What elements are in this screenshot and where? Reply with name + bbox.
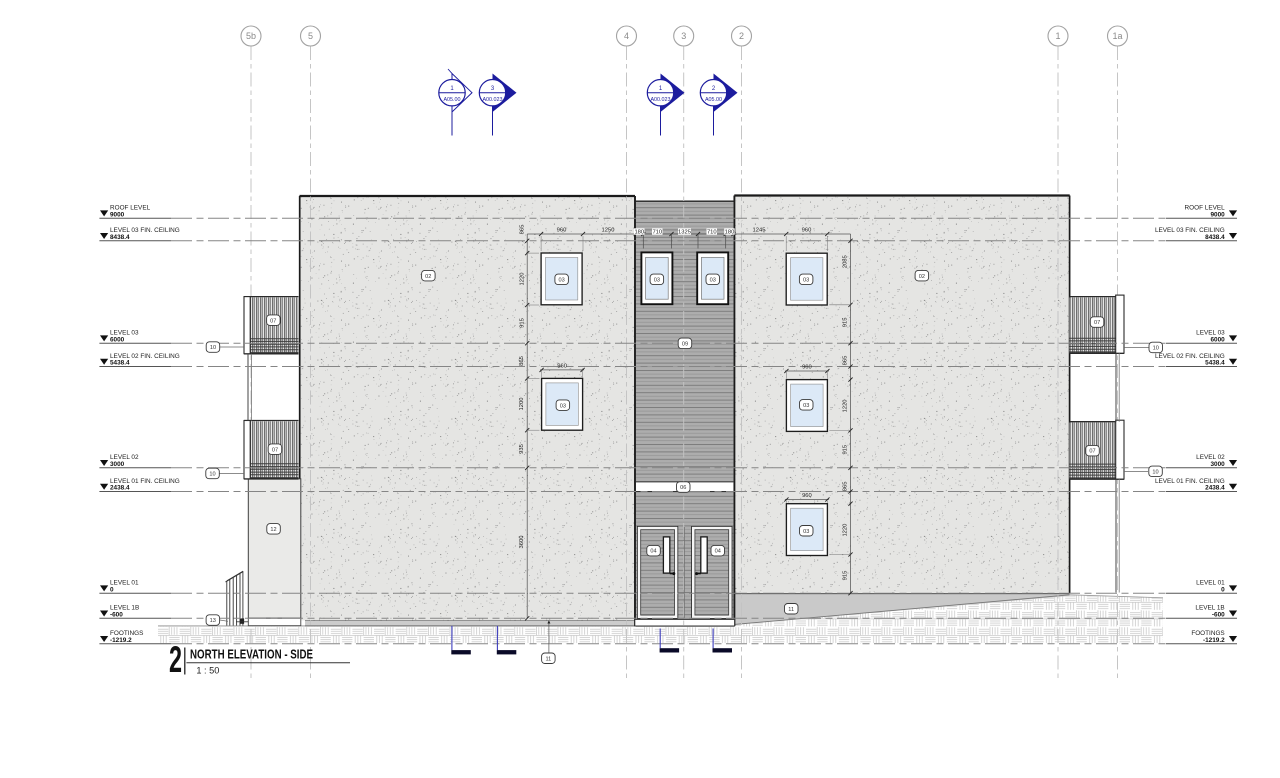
svg-text:2: 2 <box>169 639 182 680</box>
svg-text:03: 03 <box>803 277 809 283</box>
svg-text:5438.4: 5438.4 <box>110 360 130 367</box>
svg-text:915: 915 <box>843 445 849 455</box>
svg-text:9000: 9000 <box>110 211 125 218</box>
svg-text:07: 07 <box>1094 320 1100 326</box>
svg-text:865: 865 <box>843 356 849 366</box>
svg-text:0: 0 <box>110 586 114 593</box>
svg-text:07: 07 <box>1089 449 1095 455</box>
svg-text:180: 180 <box>725 230 735 236</box>
svg-text:3: 3 <box>681 31 686 41</box>
svg-text:2: 2 <box>739 31 744 41</box>
svg-text:11: 11 <box>545 656 551 662</box>
svg-text:8438.4: 8438.4 <box>110 234 130 241</box>
svg-text:-600: -600 <box>1212 611 1225 618</box>
svg-text:915: 915 <box>843 318 849 328</box>
svg-text:0: 0 <box>1221 586 1225 593</box>
svg-text:-600: -600 <box>110 611 123 618</box>
svg-text:865: 865 <box>843 482 849 492</box>
svg-text:03: 03 <box>558 277 564 283</box>
svg-text:3000: 3000 <box>1210 461 1225 468</box>
svg-text:710: 710 <box>652 230 662 236</box>
svg-text:8438.4: 8438.4 <box>1205 234 1225 241</box>
svg-text:1245: 1245 <box>753 228 766 234</box>
svg-text:5438.4: 5438.4 <box>1205 360 1225 367</box>
svg-text:12: 12 <box>270 527 276 533</box>
svg-text:A05.00: A05.00 <box>443 97 460 103</box>
svg-text:02: 02 <box>919 274 925 280</box>
svg-text:5: 5 <box>308 31 313 41</box>
svg-text:960: 960 <box>557 228 567 234</box>
svg-text:1250: 1250 <box>602 228 615 234</box>
svg-text:710: 710 <box>707 230 717 236</box>
svg-text:1 : 50: 1 : 50 <box>196 666 219 677</box>
svg-text:03: 03 <box>803 529 809 535</box>
svg-text:04: 04 <box>650 549 656 555</box>
svg-text:9000: 9000 <box>1210 211 1225 218</box>
svg-text:02: 02 <box>425 274 431 280</box>
svg-text:3600: 3600 <box>519 536 525 549</box>
svg-text:10: 10 <box>209 472 215 478</box>
svg-text:865: 865 <box>519 225 525 235</box>
svg-text:1325: 1325 <box>678 230 691 236</box>
svg-text:10: 10 <box>1153 346 1159 352</box>
svg-text:3000: 3000 <box>110 461 125 468</box>
svg-text:1220: 1220 <box>519 273 525 286</box>
svg-text:935: 935 <box>519 444 525 454</box>
svg-text:915: 915 <box>843 571 849 581</box>
svg-text:03: 03 <box>560 403 566 409</box>
svg-text:A00.023: A00.023 <box>482 97 502 103</box>
svg-text:A00.023: A00.023 <box>650 97 670 103</box>
svg-text:-1219.2: -1219.2 <box>1203 637 1225 644</box>
svg-text:180: 180 <box>634 230 644 236</box>
svg-text:1200: 1200 <box>519 398 525 411</box>
svg-text:06: 06 <box>680 485 686 491</box>
svg-text:960: 960 <box>557 364 567 370</box>
svg-text:960: 960 <box>802 365 812 371</box>
svg-text:10: 10 <box>210 345 216 351</box>
svg-text:2085: 2085 <box>843 255 849 268</box>
svg-text:11: 11 <box>788 607 794 613</box>
svg-text:09: 09 <box>682 341 688 347</box>
svg-text:6000: 6000 <box>110 336 125 343</box>
svg-text:03: 03 <box>654 277 660 283</box>
svg-text:960: 960 <box>802 228 812 234</box>
svg-text:04: 04 <box>715 549 721 555</box>
svg-text:2438.4: 2438.4 <box>1205 485 1225 492</box>
svg-text:960: 960 <box>802 493 812 499</box>
svg-text:1: 1 <box>1055 31 1060 41</box>
svg-text:2438.4: 2438.4 <box>110 485 130 492</box>
svg-text:1220: 1220 <box>843 524 849 537</box>
svg-text:5b: 5b <box>246 31 256 41</box>
svg-text:4: 4 <box>624 31 629 41</box>
svg-text:NORTH ELEVATION - SIDE: NORTH ELEVATION - SIDE <box>190 647 313 662</box>
svg-text:03: 03 <box>710 277 716 283</box>
svg-text:6000: 6000 <box>1210 336 1225 343</box>
svg-text:1a: 1a <box>1112 31 1122 41</box>
svg-text:03: 03 <box>803 403 809 409</box>
svg-text:07: 07 <box>272 447 278 453</box>
svg-text:-1219.2: -1219.2 <box>110 637 132 644</box>
svg-text:LEVEL 01: LEVEL 01 <box>110 580 139 587</box>
svg-text:07: 07 <box>270 318 276 324</box>
svg-text:865: 865 <box>519 356 525 366</box>
svg-text:A05.00: A05.00 <box>705 97 722 103</box>
svg-text:1220: 1220 <box>843 399 849 412</box>
svg-text:13: 13 <box>210 618 216 624</box>
svg-text:915: 915 <box>519 318 525 328</box>
svg-text:10: 10 <box>1152 470 1158 476</box>
